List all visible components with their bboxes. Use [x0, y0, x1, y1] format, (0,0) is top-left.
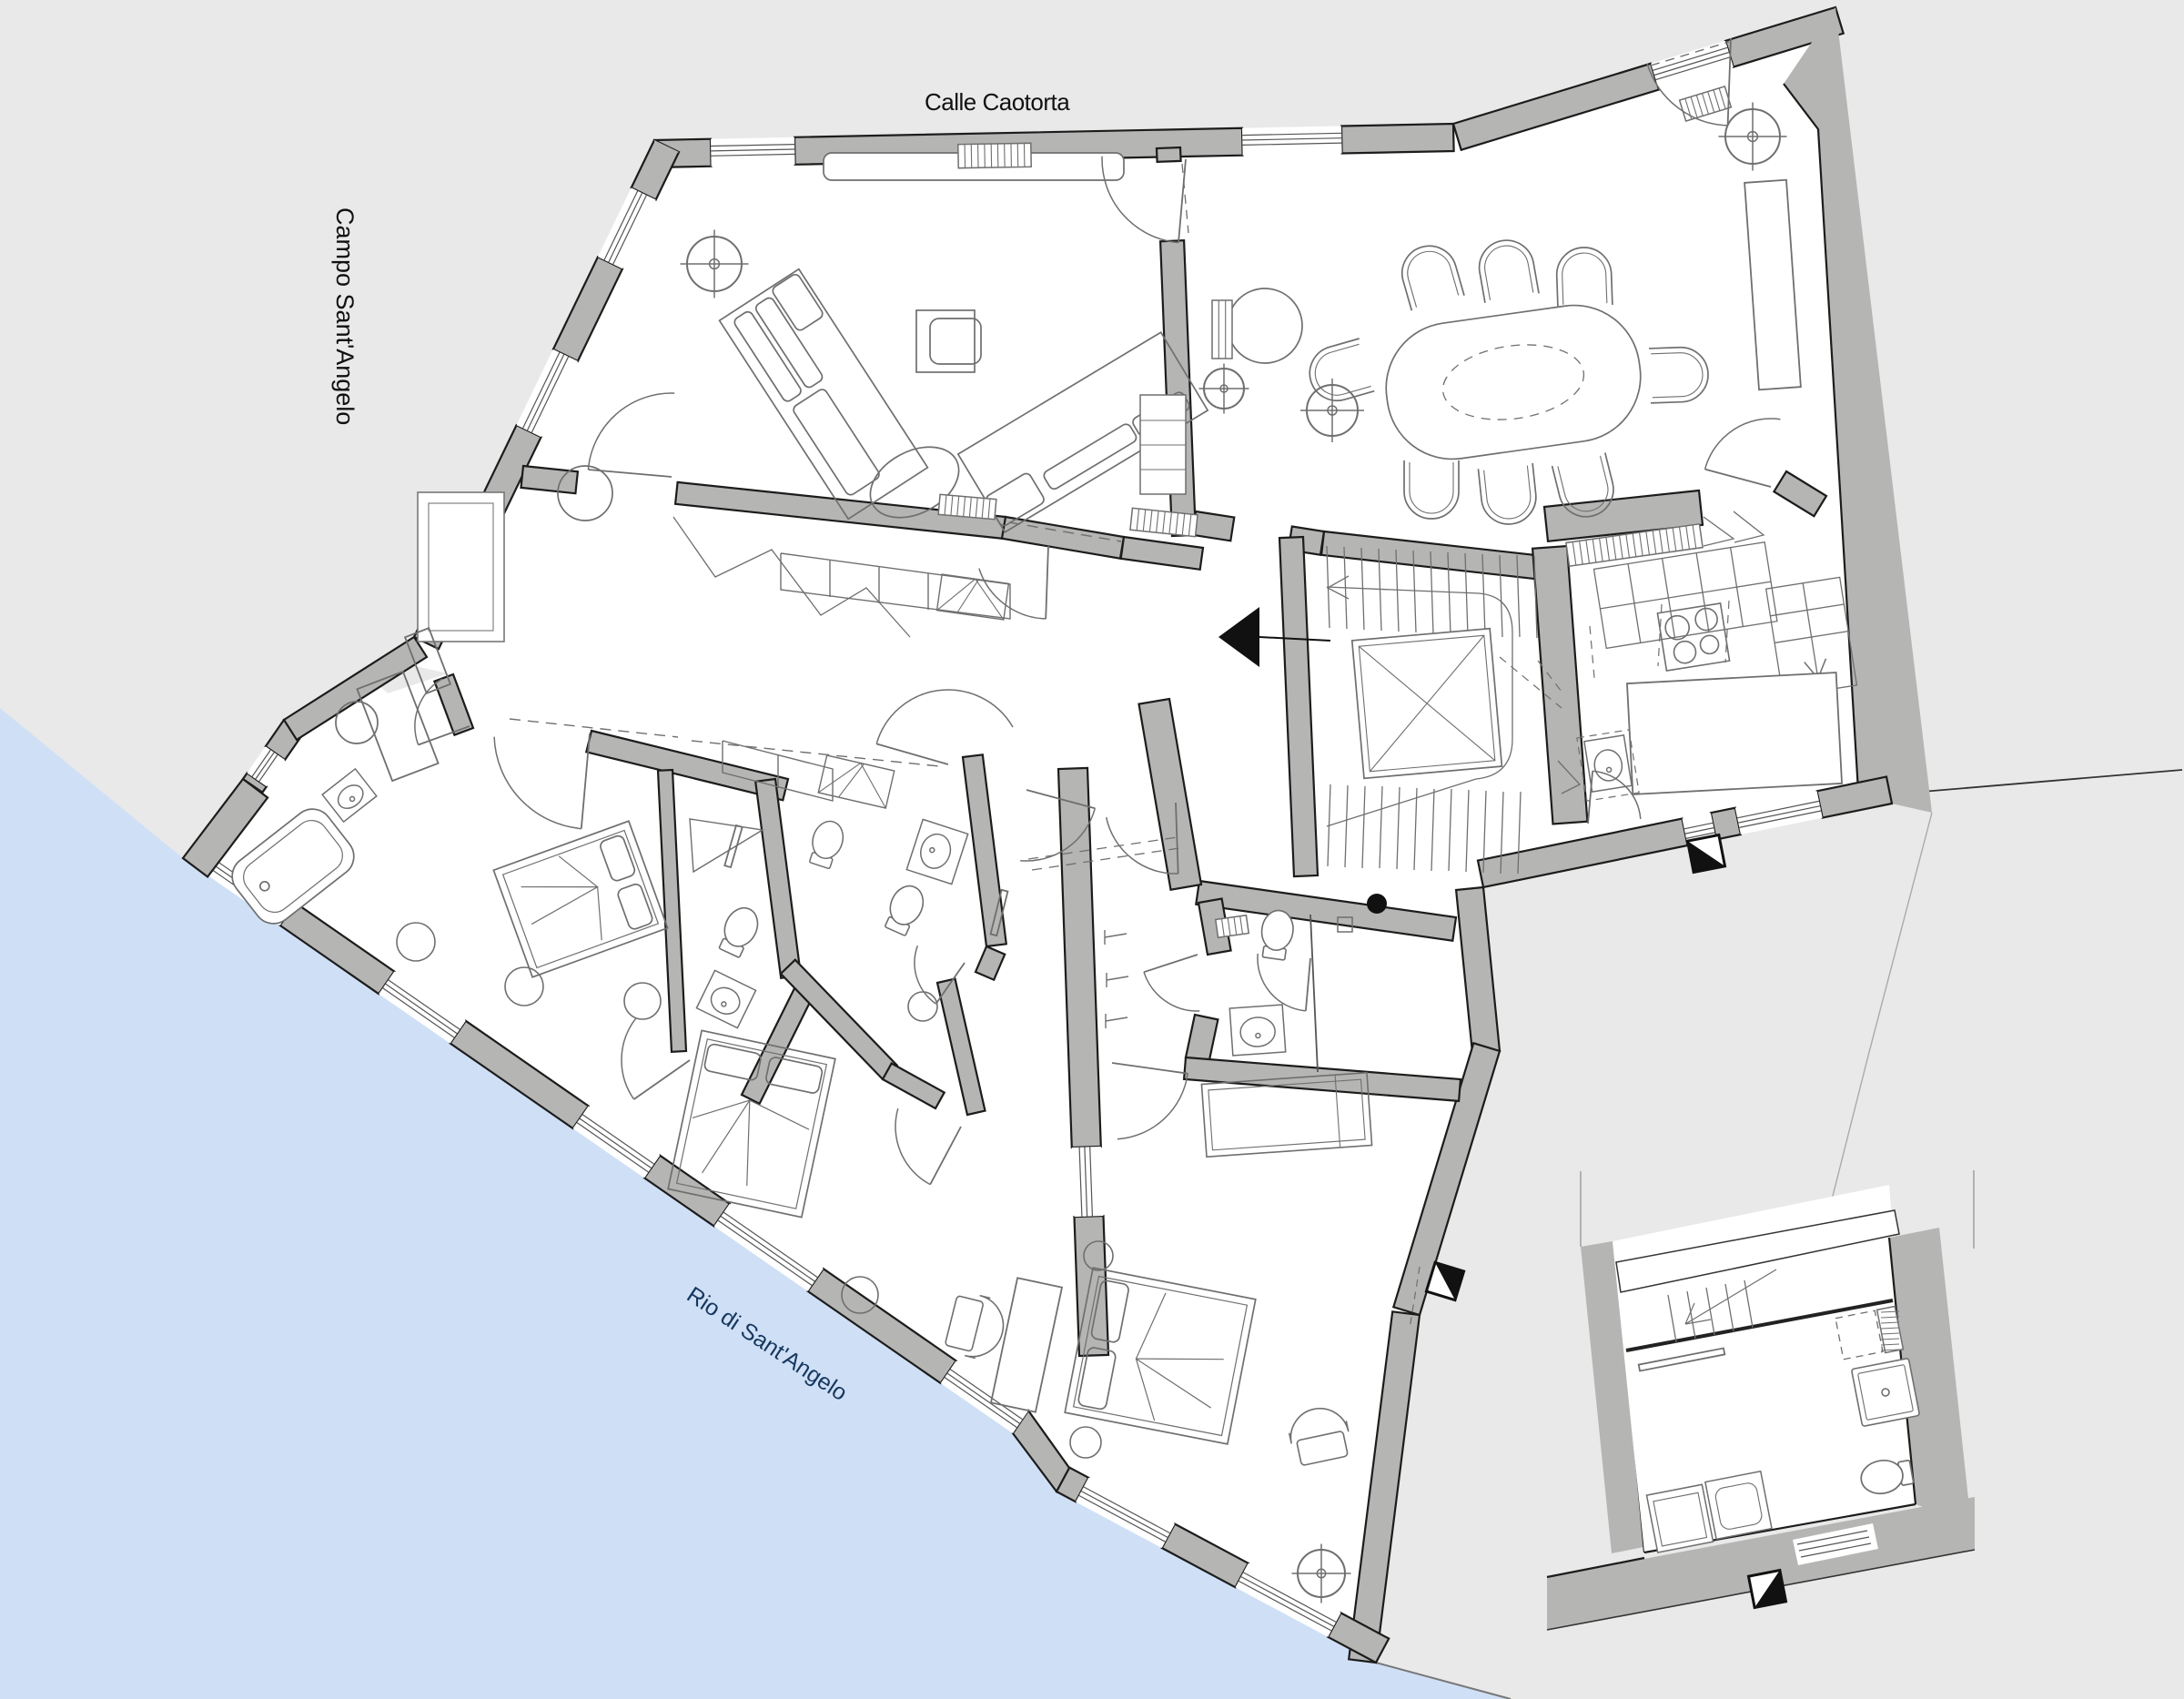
svg-text:Campo Sant'Angelo: Campo Sant'Angelo: [331, 207, 359, 425]
svg-text:Calle Caotorta: Calle Caotorta: [925, 88, 1070, 116]
